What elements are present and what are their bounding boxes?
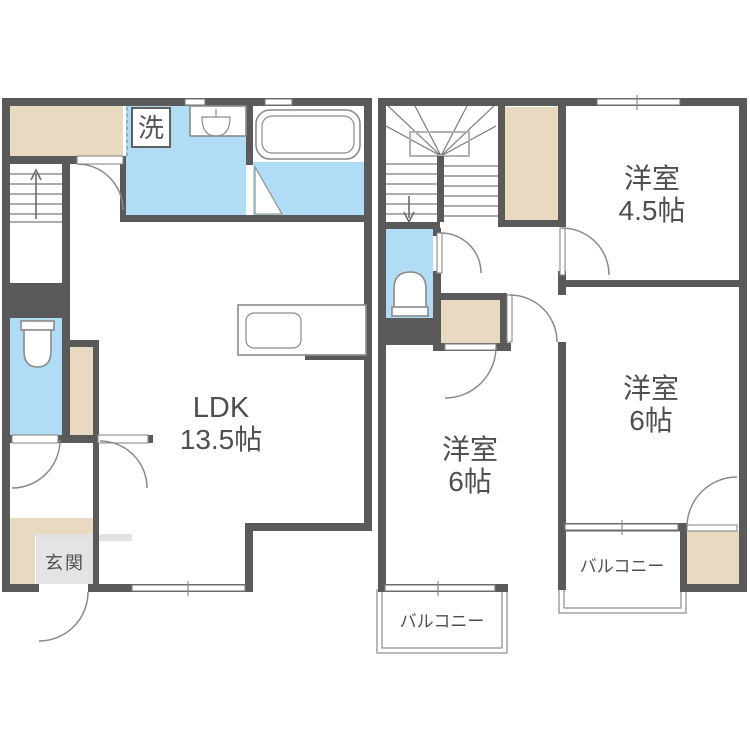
wall-segment bbox=[2, 283, 70, 318]
ldk-label: LDK bbox=[193, 392, 250, 424]
washbasin-icon bbox=[190, 106, 246, 136]
wall-segment bbox=[2, 98, 10, 592]
door-arc bbox=[12, 440, 60, 488]
room6b-label: 洋室 bbox=[442, 434, 498, 465]
genkan-step bbox=[36, 534, 132, 541]
wall-segment bbox=[246, 103, 253, 165]
wall-segment bbox=[93, 340, 99, 584]
closet-2f-hall bbox=[441, 300, 500, 343]
door-leaf bbox=[687, 525, 737, 531]
door-arc bbox=[562, 228, 609, 275]
balcony-right-label: バルコニー bbox=[580, 557, 665, 576]
wall-segment bbox=[62, 318, 70, 435]
wall-segment bbox=[437, 156, 444, 222]
entrance-door-arc bbox=[39, 592, 88, 641]
door-leaf bbox=[12, 435, 58, 443]
laundry-label: 洗 bbox=[138, 113, 164, 143]
door-arc bbox=[441, 233, 481, 273]
door-arc bbox=[77, 164, 123, 210]
wall-segment bbox=[558, 103, 566, 227]
balcony-bottom-label: バルコニー bbox=[400, 612, 485, 631]
door-leaf bbox=[560, 228, 565, 275]
room6b-size: 6帖 bbox=[448, 466, 492, 497]
wall-segment bbox=[500, 293, 507, 350]
ldk-size: 13.5帖 bbox=[180, 424, 263, 455]
walls-2f bbox=[378, 98, 747, 592]
door-arc bbox=[445, 347, 496, 398]
wall-segment bbox=[120, 215, 372, 222]
wall-segment bbox=[245, 523, 372, 531]
window bbox=[265, 99, 292, 105]
wall-segment bbox=[558, 280, 747, 287]
closet-top-left bbox=[10, 106, 123, 156]
room45-size: 4.5帖 bbox=[619, 195, 686, 226]
door-arc bbox=[100, 441, 147, 488]
closet-2f-top bbox=[505, 107, 558, 220]
shoe-cabinet-wide bbox=[33, 518, 99, 536]
room45-label: 洋室 bbox=[624, 163, 680, 194]
doorway-room6-right bbox=[558, 295, 566, 342]
wall-segment bbox=[498, 103, 505, 227]
staircase-1f bbox=[10, 170, 62, 222]
bathtub-icon bbox=[256, 110, 360, 159]
door-arc bbox=[510, 295, 557, 342]
window bbox=[185, 99, 205, 105]
toilet-icon bbox=[392, 272, 428, 316]
kitchen-counter bbox=[238, 305, 366, 355]
door-leaf bbox=[77, 156, 123, 164]
wall-segment bbox=[70, 340, 93, 347]
floorplan-canvas: 洗 LDK 13.5帖 洋室 4.5帖 洋室 6帖 洋室 6帖 バルコニー バル… bbox=[0, 0, 750, 750]
window bbox=[597, 99, 680, 105]
wall-segment bbox=[378, 318, 441, 345]
floorplan-svg: 洗 LDK 13.5帖 洋室 4.5帖 洋室 6帖 洋室 6帖 バルコニー バル… bbox=[0, 0, 750, 750]
laundry-box: 洗 bbox=[132, 108, 170, 147]
toilet-icon bbox=[21, 321, 54, 367]
wall-segment bbox=[498, 220, 566, 227]
door-leaf bbox=[445, 344, 496, 350]
entrance-opening bbox=[39, 584, 88, 592]
door-leaf bbox=[437, 233, 442, 273]
closet-1f-mid bbox=[70, 347, 93, 435]
door-leaf bbox=[507, 295, 512, 342]
window bbox=[385, 585, 495, 591]
room6r-label: 洋室 bbox=[623, 373, 679, 404]
wall-segment bbox=[433, 293, 507, 300]
genkan-label: 玄関 bbox=[45, 553, 85, 573]
closet-2f-corner bbox=[687, 531, 739, 584]
wall-segment bbox=[739, 98, 747, 590]
shoe-cabinet-tall bbox=[10, 518, 35, 584]
wall-segment bbox=[680, 523, 687, 591]
stairs-down-arrow bbox=[404, 196, 414, 222]
door-arc bbox=[687, 477, 737, 527]
wall-segment bbox=[680, 584, 747, 592]
wall-segment bbox=[245, 523, 253, 592]
wall-segment bbox=[378, 222, 440, 229]
room6r-size: 6帖 bbox=[629, 405, 673, 436]
